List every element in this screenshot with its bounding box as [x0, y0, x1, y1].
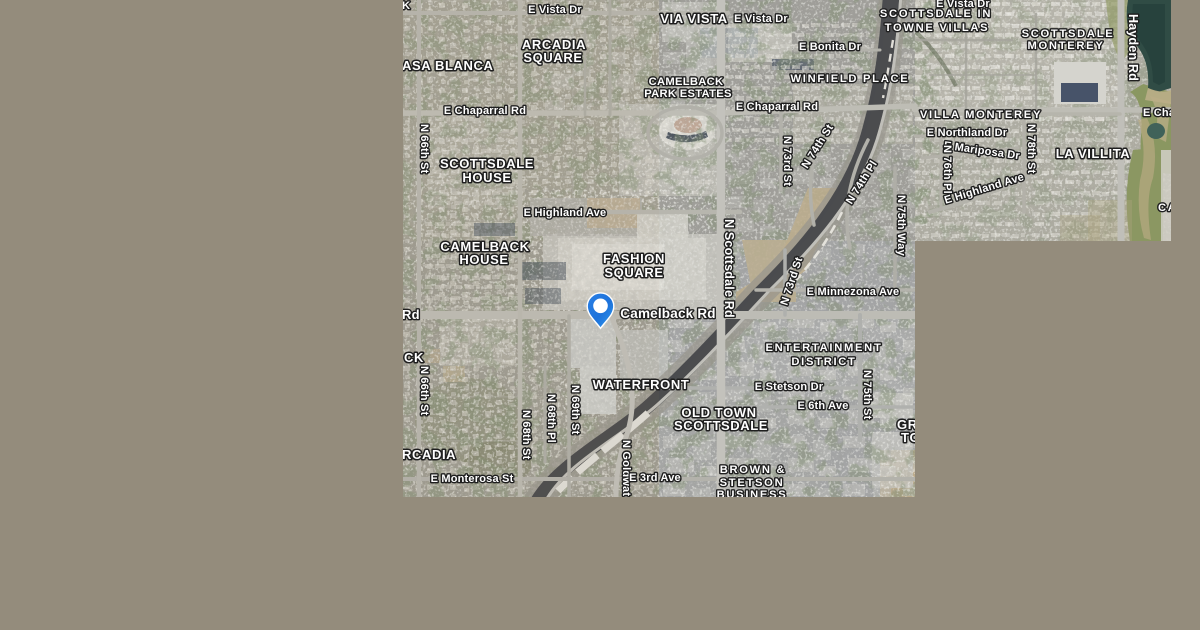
svg-text:MONTEREY: MONTEREY: [1028, 40, 1105, 52]
svg-text:E Vista Dr: E Vista Dr: [528, 4, 582, 16]
svg-text:LA VILLITA: LA VILLITA: [1056, 146, 1131, 161]
svg-text:N 76th Pl: N 76th Pl: [941, 145, 953, 194]
svg-text:SQUARE: SQUARE: [604, 265, 663, 280]
svg-text:E Monterosa St: E Monterosa St: [431, 473, 514, 485]
svg-text:CAMELBACK: CAMELBACK: [649, 76, 724, 88]
svg-text:SCOTTSDALE IN: SCOTTSDALE IN: [880, 8, 992, 20]
svg-text:E Bonita Dr: E Bonita Dr: [799, 41, 862, 53]
svg-text:E Vista Dr: E Vista Dr: [734, 13, 788, 25]
svg-text:N 66th St: N 66th St: [418, 366, 430, 416]
svg-text:CK: CK: [404, 350, 424, 365]
svg-text:E Northland Dr: E Northland Dr: [927, 127, 1008, 139]
svg-text:N 73rd St: N 73rd St: [781, 136, 793, 186]
svg-text:SCOTTSDALE: SCOTTSDALE: [440, 156, 534, 171]
svg-text:N 69th St: N 69th St: [569, 385, 581, 435]
svg-text:BROWN &: BROWN &: [720, 464, 787, 476]
svg-text:TOWNE VILLAS: TOWNE VILLAS: [885, 22, 990, 34]
svg-text:E 6th Ave: E 6th Ave: [797, 400, 848, 412]
svg-text:HOUSE: HOUSE: [462, 170, 511, 185]
svg-text:WINFIELD PLACE: WINFIELD PLACE: [791, 73, 910, 85]
svg-text:N 68th Pl: N 68th Pl: [545, 394, 557, 443]
svg-text:RCADIA: RCADIA: [402, 447, 456, 462]
svg-text:VIA VISTA: VIA VISTA: [660, 11, 728, 26]
svg-text:ENTERTAINMENT: ENTERTAINMENT: [766, 342, 883, 354]
svg-text:SCOTTSDALE: SCOTTSDALE: [674, 418, 768, 433]
svg-text:N 75th St: N 75th St: [861, 370, 873, 420]
svg-text:WATERFRONT: WATERFRONT: [593, 377, 690, 392]
svg-text:E Minnezona Ave: E Minnezona Ave: [807, 286, 900, 298]
svg-text:E Chaparral Rd: E Chaparral Rd: [444, 105, 526, 117]
svg-text:E Chaparral Rd: E Chaparral Rd: [736, 101, 818, 113]
svg-text:Hayden Rd: Hayden Rd: [1126, 14, 1140, 81]
svg-text:STETSON: STETSON: [720, 477, 785, 489]
svg-text:E Stetson Dr: E Stetson Dr: [755, 381, 824, 393]
svg-text:Camelback Rd: Camelback Rd: [620, 306, 715, 321]
svg-text:K: K: [402, 0, 412, 12]
svg-text:N 75th Way: N 75th Way: [895, 195, 907, 257]
svg-text:VILLA MONTEREY: VILLA MONTEREY: [920, 109, 1042, 121]
svg-text:DISTRICT: DISTRICT: [791, 356, 856, 368]
svg-text:ASA BLANCA: ASA BLANCA: [402, 58, 493, 73]
svg-text:N 68th St: N 68th St: [520, 410, 532, 460]
svg-text:SCOTTSDALE: SCOTTSDALE: [1022, 28, 1115, 40]
svg-text:E Highland Ave: E Highland Ave: [524, 207, 607, 219]
svg-text:N Scottsdale Rd: N Scottsdale Rd: [722, 219, 736, 318]
svg-text:SQUARE: SQUARE: [523, 50, 582, 65]
svg-text:E 3rd Ave: E 3rd Ave: [629, 472, 681, 484]
svg-text:N 66th St: N 66th St: [418, 124, 430, 174]
svg-text:PARK ESTATES: PARK ESTATES: [644, 88, 732, 100]
svg-text:FASHION: FASHION: [603, 251, 665, 266]
svg-text:N 78th St: N 78th St: [1025, 124, 1037, 174]
svg-text:Rd: Rd: [402, 307, 420, 322]
svg-text:HOUSE: HOUSE: [459, 252, 508, 267]
